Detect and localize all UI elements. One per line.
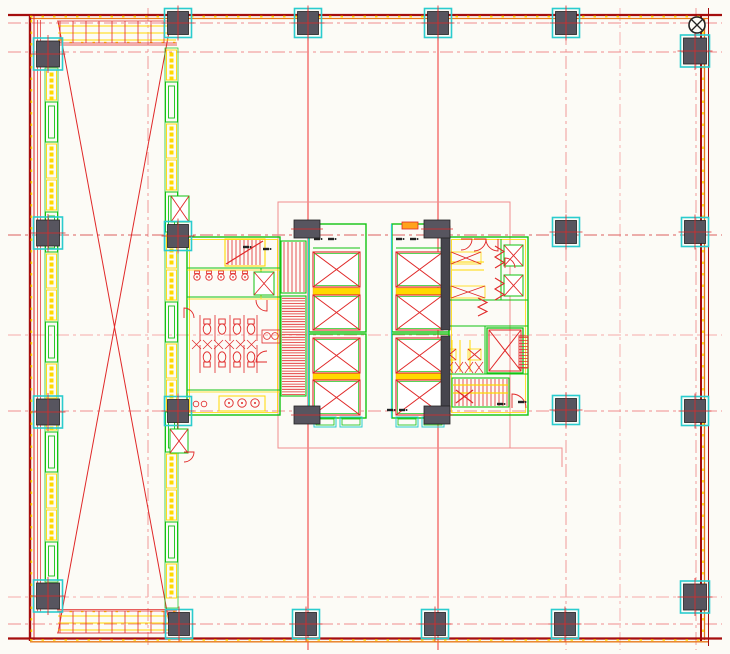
window-strip-west: [50, 79, 53, 82]
window-strip-west: [50, 489, 53, 492]
window-strip-core-west: [170, 273, 173, 276]
window-strip-core-west: [170, 353, 173, 356]
window-strip-west: [50, 519, 53, 522]
window-strip-core-west: [170, 359, 173, 362]
window-strip-core-west: [170, 187, 173, 190]
window-strip-core-west: [170, 59, 173, 62]
urinal-fixtures: [232, 276, 234, 278]
fixture-marks: [504, 403, 506, 405]
fixture-marks: [394, 409, 396, 411]
fixture-marks: [417, 238, 419, 240]
urinal-fixtures: [220, 276, 222, 278]
window-strip-west: [50, 91, 53, 94]
fixture-marks: [335, 238, 337, 240]
window-strip-west: [50, 317, 53, 320]
window-strip-west: [50, 495, 53, 498]
window-strip-core-west: [170, 469, 173, 472]
background: [0, 0, 730, 654]
window-strip-west: [50, 263, 53, 266]
window-strip-core-west: [170, 365, 173, 368]
window-strip-core-west: [170, 279, 173, 282]
cad-viewport: [0, 0, 730, 654]
fixture-marks: [525, 401, 527, 403]
fixture-marks: [406, 409, 408, 411]
core-dark-walls: [441, 226, 450, 330]
fixture-marks: [497, 403, 503, 405]
fixture-marks: [328, 238, 334, 240]
window-strip-west: [50, 207, 53, 210]
window-strip-west: [50, 525, 53, 528]
fixture-marks: [270, 248, 272, 250]
fixture-marks: [410, 238, 416, 240]
window-strip-core-west: [170, 139, 173, 142]
window-strip-west: [50, 373, 53, 376]
fixture-marks: [399, 409, 405, 411]
window-strip-west: [50, 391, 53, 394]
sink-counter: [254, 402, 256, 404]
window-strip-core-west: [170, 585, 173, 588]
fixture-marks: [387, 409, 393, 411]
window-strip-west: [50, 73, 53, 76]
window-strip-core-west: [170, 169, 173, 172]
core-dark-walls: [441, 336, 450, 414]
elevator-shaft: [396, 338, 443, 373]
core-dark-walls: [402, 222, 418, 229]
window-strip-west: [50, 153, 53, 156]
window-strip-core-west: [170, 291, 173, 294]
window-strip-core-west: [170, 505, 173, 508]
elevator-bank-east: [396, 288, 443, 295]
window-strip-core-west: [170, 297, 173, 300]
window-strip-core-west: [170, 591, 173, 594]
fixture-marks: [250, 246, 252, 248]
window-strip-core-west: [170, 389, 173, 392]
circled-x-marker-icon: [689, 17, 705, 33]
window-strip-west: [50, 501, 53, 504]
window-strip-west: [50, 189, 53, 192]
urinal-fixtures: [208, 276, 210, 278]
window-strip-core-west: [170, 567, 173, 570]
sink-counter: [241, 402, 243, 404]
window-strip-west: [50, 385, 53, 388]
window-strip-west: [50, 305, 53, 308]
window-strip-core-west: [170, 285, 173, 288]
fixture-marks: [243, 246, 249, 248]
window-strip-core-west: [170, 151, 173, 154]
window-strip-west: [50, 183, 53, 186]
window-strip-west: [50, 281, 53, 284]
elevator-bank-west: [313, 373, 360, 380]
window-strip-core-west: [170, 475, 173, 478]
window-strip-west: [50, 379, 53, 382]
fixture-marks: [314, 238, 320, 240]
window-strip-core-west: [170, 181, 173, 184]
window-strip-west: [50, 165, 53, 168]
window-strip-west: [50, 171, 53, 174]
fixture-marks: [321, 238, 323, 240]
window-strip-west: [50, 269, 53, 272]
window-strip-west: [50, 201, 53, 204]
window-strip-core-west: [170, 517, 173, 520]
elevator-bank-west: [313, 288, 360, 295]
window-strip-core-west: [170, 573, 173, 576]
window-strip-core-west: [170, 579, 173, 582]
fixture-marks: [518, 401, 524, 403]
window-strip-core-west: [170, 371, 173, 374]
window-strip-west: [50, 483, 53, 486]
elevator-bank-east: [392, 224, 450, 418]
window-strip-core-west: [170, 65, 173, 68]
window-strip-west: [50, 275, 53, 278]
window-strip-core-west: [170, 499, 173, 502]
floor-plan-canvas[interactable]: [0, 0, 730, 654]
fixture-marks: [396, 238, 402, 240]
window-strip-core-west: [170, 511, 173, 514]
window-strip-west: [50, 537, 53, 540]
window-strip-west: [50, 97, 53, 100]
window-strip-core-west: [170, 145, 173, 148]
window-strip-core-west: [170, 347, 173, 350]
window-strip-core-west: [170, 255, 173, 258]
window-strip-core-west: [170, 481, 173, 484]
window-strip-core-west: [170, 383, 173, 386]
elevator-shaft: [396, 295, 443, 330]
window-strip-core-west: [170, 493, 173, 496]
window-strip-west: [50, 257, 53, 260]
window-strip-west: [50, 531, 53, 534]
window-strip-core-west: [170, 127, 173, 130]
sink-counter: [228, 402, 230, 404]
background: [0, 0, 730, 654]
window-strip-core-west: [170, 457, 173, 460]
elevator-shaft: [313, 252, 360, 287]
elevator-shaft: [313, 338, 360, 373]
window-strip-core-west: [170, 77, 173, 80]
window-strip-core-west: [170, 163, 173, 166]
window-strip-west: [50, 147, 53, 150]
window-strip-west: [50, 85, 53, 88]
window-strip-west: [50, 311, 53, 314]
elevator-bank-west: [309, 224, 367, 418]
window-strip-west: [50, 299, 53, 302]
window-strip-core-west: [170, 175, 173, 178]
fixture-marks: [263, 248, 269, 250]
elevator-bank-east: [396, 373, 443, 380]
window-strip-west: [50, 367, 53, 370]
window-strip-west: [50, 513, 53, 516]
window-strip-west: [50, 159, 53, 162]
window-strip-core-west: [170, 463, 173, 466]
window-strip-core-west: [170, 71, 173, 74]
window-strip-west: [50, 293, 53, 296]
window-strip-west: [50, 477, 53, 480]
window-strip-west: [50, 195, 53, 198]
window-strip-core-west: [170, 261, 173, 264]
fixture-marks: [403, 238, 405, 240]
window-strip-core-west: [170, 53, 173, 56]
elevator-shaft: [396, 252, 443, 287]
window-strip-core-west: [170, 133, 173, 136]
urinal-fixtures: [244, 276, 246, 278]
elevator-shaft: [313, 295, 360, 330]
urinal-fixtures: [196, 276, 198, 278]
